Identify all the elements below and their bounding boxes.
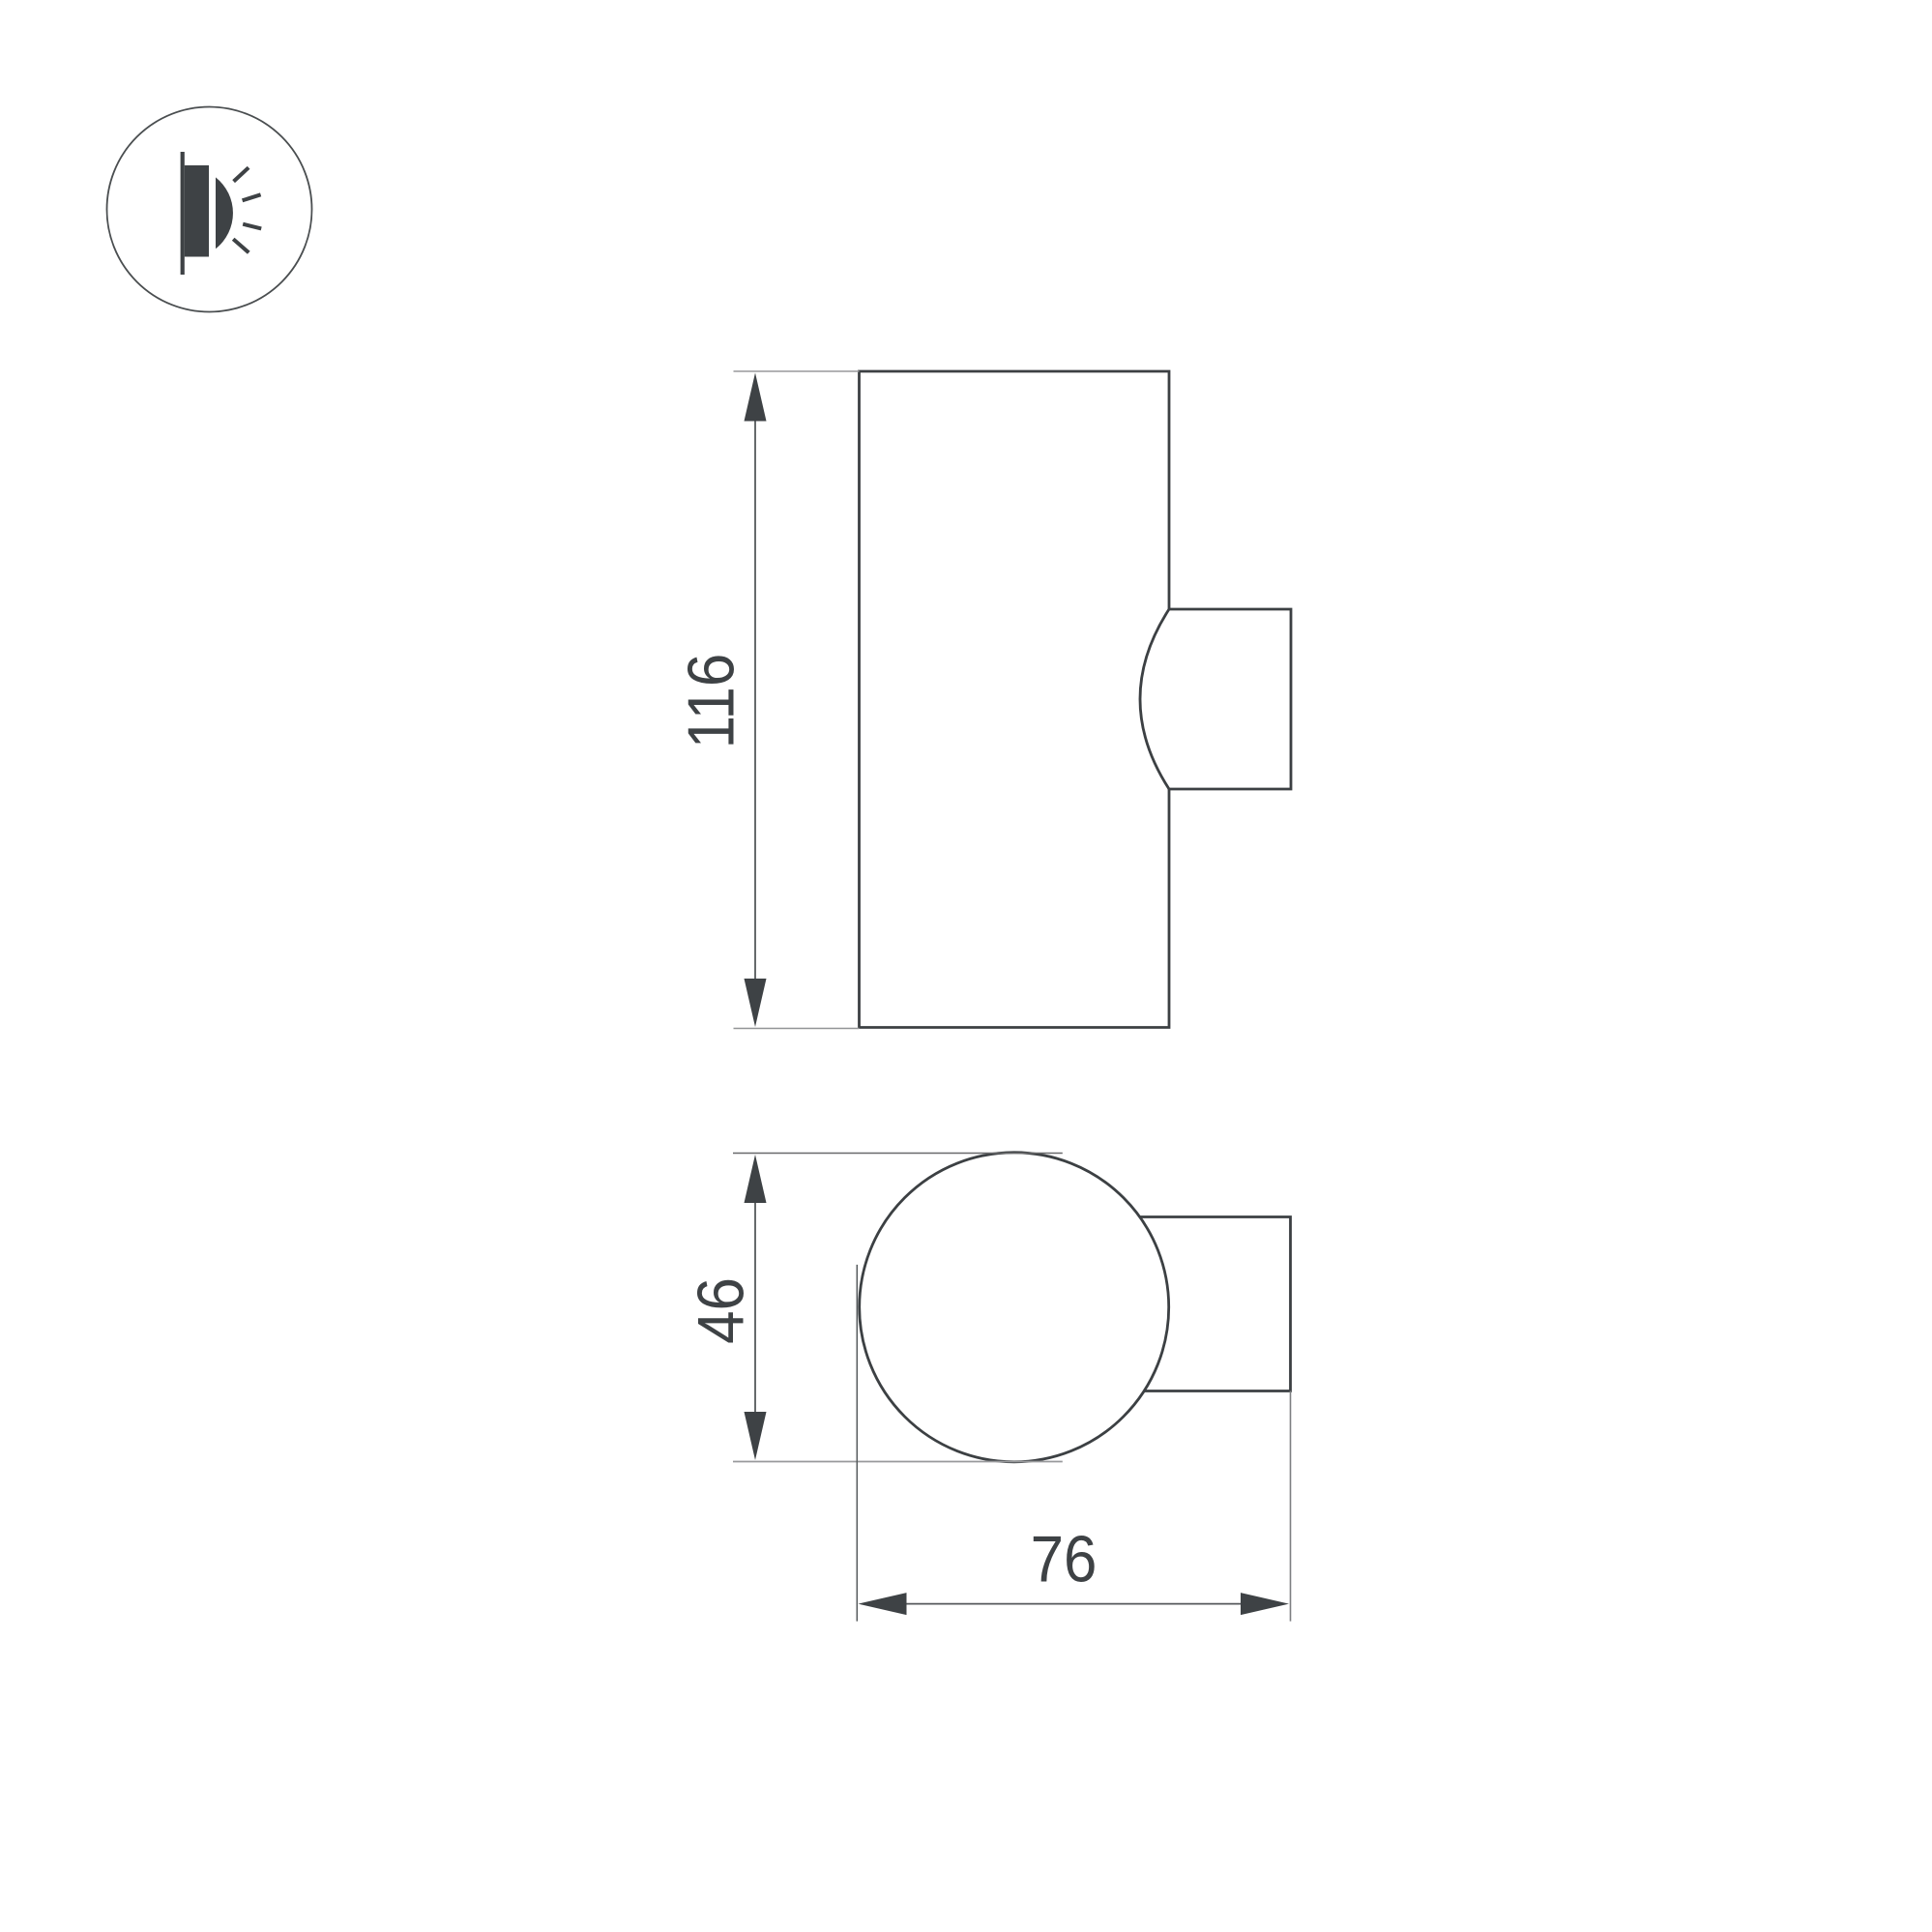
- svg-text:116: 116: [674, 654, 747, 749]
- svg-text:46: 46: [684, 1277, 757, 1344]
- svg-text:76: 76: [1031, 1522, 1098, 1595]
